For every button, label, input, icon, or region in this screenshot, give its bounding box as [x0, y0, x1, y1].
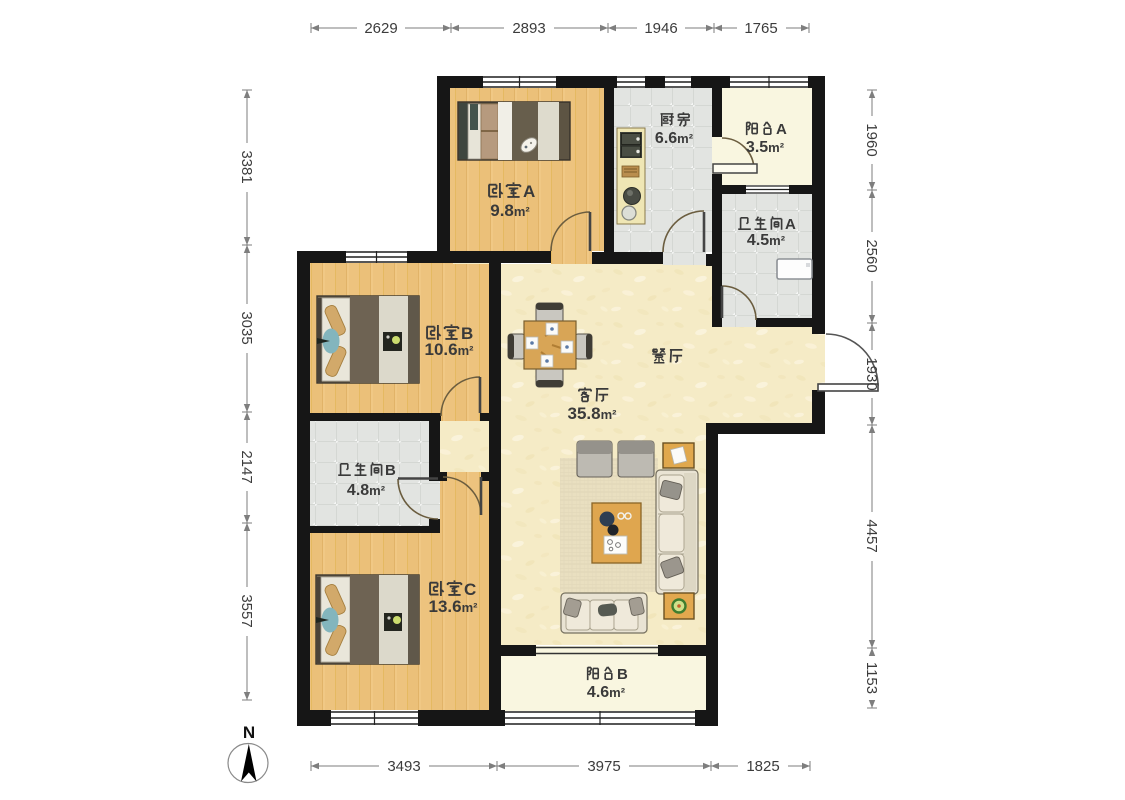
svg-text:1153: 1153: [863, 662, 880, 694]
svg-text:4.8m²: 4.8m²: [347, 482, 386, 499]
svg-text:1765: 1765: [744, 20, 777, 37]
svg-text:B: B: [617, 666, 628, 683]
svg-text:B: B: [461, 324, 473, 343]
svg-text:3557: 3557: [238, 594, 255, 627]
svg-text:10.6m²: 10.6m²: [425, 340, 475, 359]
svg-text:1930: 1930: [863, 357, 880, 390]
svg-text:A: A: [785, 216, 796, 233]
svg-text:1960: 1960: [863, 123, 880, 156]
svg-text:35.8m²: 35.8m²: [568, 404, 618, 423]
svg-text:N: N: [243, 723, 255, 742]
svg-text:4457: 4457: [863, 519, 880, 552]
svg-text:C: C: [464, 580, 476, 599]
svg-text:4.6m²: 4.6m²: [587, 684, 626, 701]
svg-text:3493: 3493: [387, 758, 420, 775]
svg-text:2560: 2560: [863, 239, 880, 272]
svg-text:13.6m²: 13.6m²: [429, 597, 479, 616]
svg-text:6.6m²: 6.6m²: [655, 130, 694, 147]
svg-text:9.8m²: 9.8m²: [490, 201, 530, 220]
svg-text:1825: 1825: [746, 758, 779, 775]
svg-text:3381: 3381: [238, 150, 255, 183]
svg-text:2147: 2147: [238, 450, 255, 483]
svg-text:2629: 2629: [364, 20, 397, 37]
svg-text:3035: 3035: [238, 311, 255, 344]
svg-text:2893: 2893: [512, 20, 545, 37]
svg-text:4.5m²: 4.5m²: [747, 232, 786, 249]
svg-text:1946: 1946: [644, 20, 677, 37]
svg-text:A: A: [776, 121, 787, 138]
svg-text:3.5m²: 3.5m²: [746, 139, 785, 156]
svg-text:B: B: [385, 462, 396, 479]
svg-text:A: A: [523, 182, 535, 201]
svg-text:3975: 3975: [587, 758, 620, 775]
